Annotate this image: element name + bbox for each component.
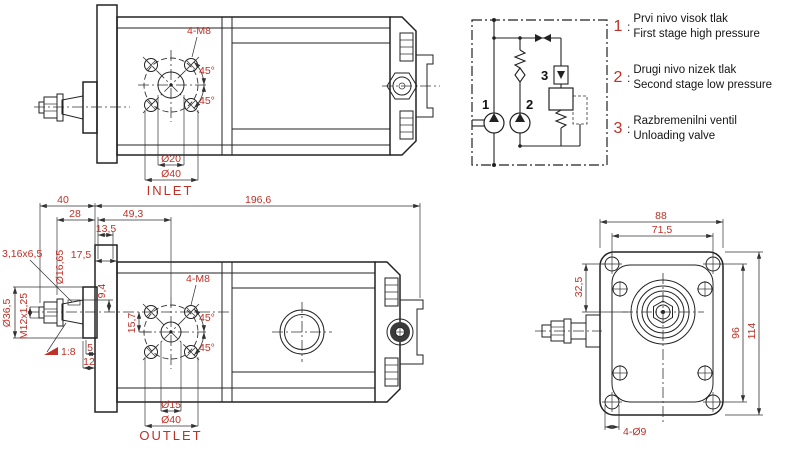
dim-bolt-pattern: 4-M8 xyxy=(186,273,210,285)
top-side-view: 4-M8 45° 45° Ø20 Ø40 INLET xyxy=(0,0,470,200)
dim-thread: M12x1,25 xyxy=(18,293,30,339)
top-view-dimensions: 4-M8 45° 45° Ø20 Ø40 INLET xyxy=(145,25,215,198)
top-view-shaft xyxy=(34,82,130,133)
dim-114: 114 xyxy=(746,322,758,339)
rear-plug xyxy=(387,319,413,345)
pilot-line-box xyxy=(573,96,587,124)
pump-2-arrow xyxy=(515,113,525,122)
legend-2-en: Second stage low pressure xyxy=(633,78,772,93)
bottom-view-outlet-port-face xyxy=(140,297,206,369)
bottom-view-dimensions: 196,6 40 28 49,3 13,5 17,5 3,16x6,5 Ø16,… xyxy=(1,194,420,443)
dim-angle-top: 45° xyxy=(199,312,215,324)
dim-96: 96 xyxy=(730,327,742,339)
legend-num-2: 2 xyxy=(612,70,624,86)
bottom-view-pump-body xyxy=(95,245,423,412)
bottom-side-view: 196,6 40 28 49,3 13,5 17,5 3,16x6,5 Ø16,… xyxy=(0,195,470,450)
dim-dia-bolt-circle: Ø40 xyxy=(161,414,181,426)
second-stage-port xyxy=(272,302,332,362)
dim-40: 40 xyxy=(57,194,69,206)
dim-key-size: 3,16x6,5 xyxy=(2,248,42,260)
dim-5: 5 xyxy=(87,342,93,354)
schematic-label-valve: 3 xyxy=(541,68,548,83)
dim-9-4: 9,4 xyxy=(96,284,108,299)
dim-dia-port: Ø20 xyxy=(161,153,181,165)
schematic-legend: 1 : Prvi nivo visok tlak First stage hig… xyxy=(612,12,800,165)
legend-num-3: 3 xyxy=(612,121,624,137)
dim-overall-length: 196,6 xyxy=(245,194,271,206)
unloading-valve-body xyxy=(549,88,573,110)
valve-arrow xyxy=(557,71,565,79)
dim-taper: 1:8 xyxy=(61,346,76,358)
dim-32-5: 32,5 xyxy=(573,277,585,298)
check-arrow-left xyxy=(535,34,543,42)
legend-2-sl: Drugi nivo nizek tlak xyxy=(633,63,772,78)
legend-item-3: 3 : Razbremenilni ventil Unloading valve xyxy=(612,114,800,144)
side-valve-screw xyxy=(535,315,602,347)
pump-1-arrow xyxy=(489,113,499,122)
dim-15-7: 15,7 xyxy=(126,313,138,334)
front-flange-view: 88 71,5 32,5 96 114 4-Ø9 xyxy=(530,195,800,450)
dim-dia-36-5: Ø36,5 xyxy=(1,299,13,328)
dim-13-5: 13,5 xyxy=(96,223,117,235)
schematic-label-pump1: 1 xyxy=(482,97,489,112)
dim-angle-bottom: 45° xyxy=(199,342,215,354)
front-view-dimensions: 88 71,5 32,5 96 114 4-Ø9 xyxy=(573,210,763,438)
shaft-boss xyxy=(622,273,704,423)
dim-dia-bolt-circle: Ø40 xyxy=(161,168,181,180)
technical-drawing-canvas: 4-M8 45° 45° Ø20 Ø40 INLET xyxy=(0,0,800,450)
legend-item-1: 1 : Prvi nivo visok tlak First stage hig… xyxy=(612,12,800,42)
legend-1-en: First stage high pressure xyxy=(633,27,760,42)
dim-dia-16-65: Ø16,65 xyxy=(54,250,66,285)
dim-angle-bottom: 45° xyxy=(199,95,215,107)
outlet-label: OUTLET xyxy=(139,428,202,443)
dim-17-5: 17,5 xyxy=(71,249,92,261)
legend-3-sl: Razbremenilni ventil xyxy=(633,114,737,129)
legend-colon-1: : xyxy=(627,20,630,34)
legend-num-1: 1 xyxy=(612,19,624,35)
legend-colon-2: : xyxy=(627,71,630,85)
legend-3-en: Unloading valve xyxy=(633,129,737,144)
dim-corner-holes: 4-Ø9 xyxy=(623,426,647,438)
dim-49-3: 49,3 xyxy=(123,208,144,220)
dim-71-5: 71,5 xyxy=(652,224,673,236)
schematic-lines xyxy=(472,20,580,165)
dim-bolt-pattern: 4-M8 xyxy=(187,25,211,37)
schematic-components xyxy=(484,18,587,167)
schematic-boundary xyxy=(472,20,607,165)
taper-symbol xyxy=(44,347,58,355)
dim-angle-top: 45° xyxy=(199,65,215,77)
legend-colon-3: : xyxy=(627,122,630,136)
check-arrow-right xyxy=(543,34,551,42)
top-view-pump-body xyxy=(97,5,440,163)
legend-1-sl: Prvi nivo visok tlak xyxy=(633,12,760,27)
hydraulic-schematic: 1 2 3 xyxy=(465,8,615,170)
legend-item-2: 2 : Drugi nivo nizek tlak Second stage l… xyxy=(612,63,800,93)
top-view-inlet-port-face xyxy=(138,50,206,122)
front-view-flange xyxy=(535,252,723,423)
dim-12: 12 xyxy=(83,356,95,368)
dim-88: 88 xyxy=(655,210,667,222)
dim-28: 28 xyxy=(69,208,81,220)
schematic-label-pump2: 2 xyxy=(526,97,533,112)
dim-dia-port: Ø15 xyxy=(161,399,181,411)
